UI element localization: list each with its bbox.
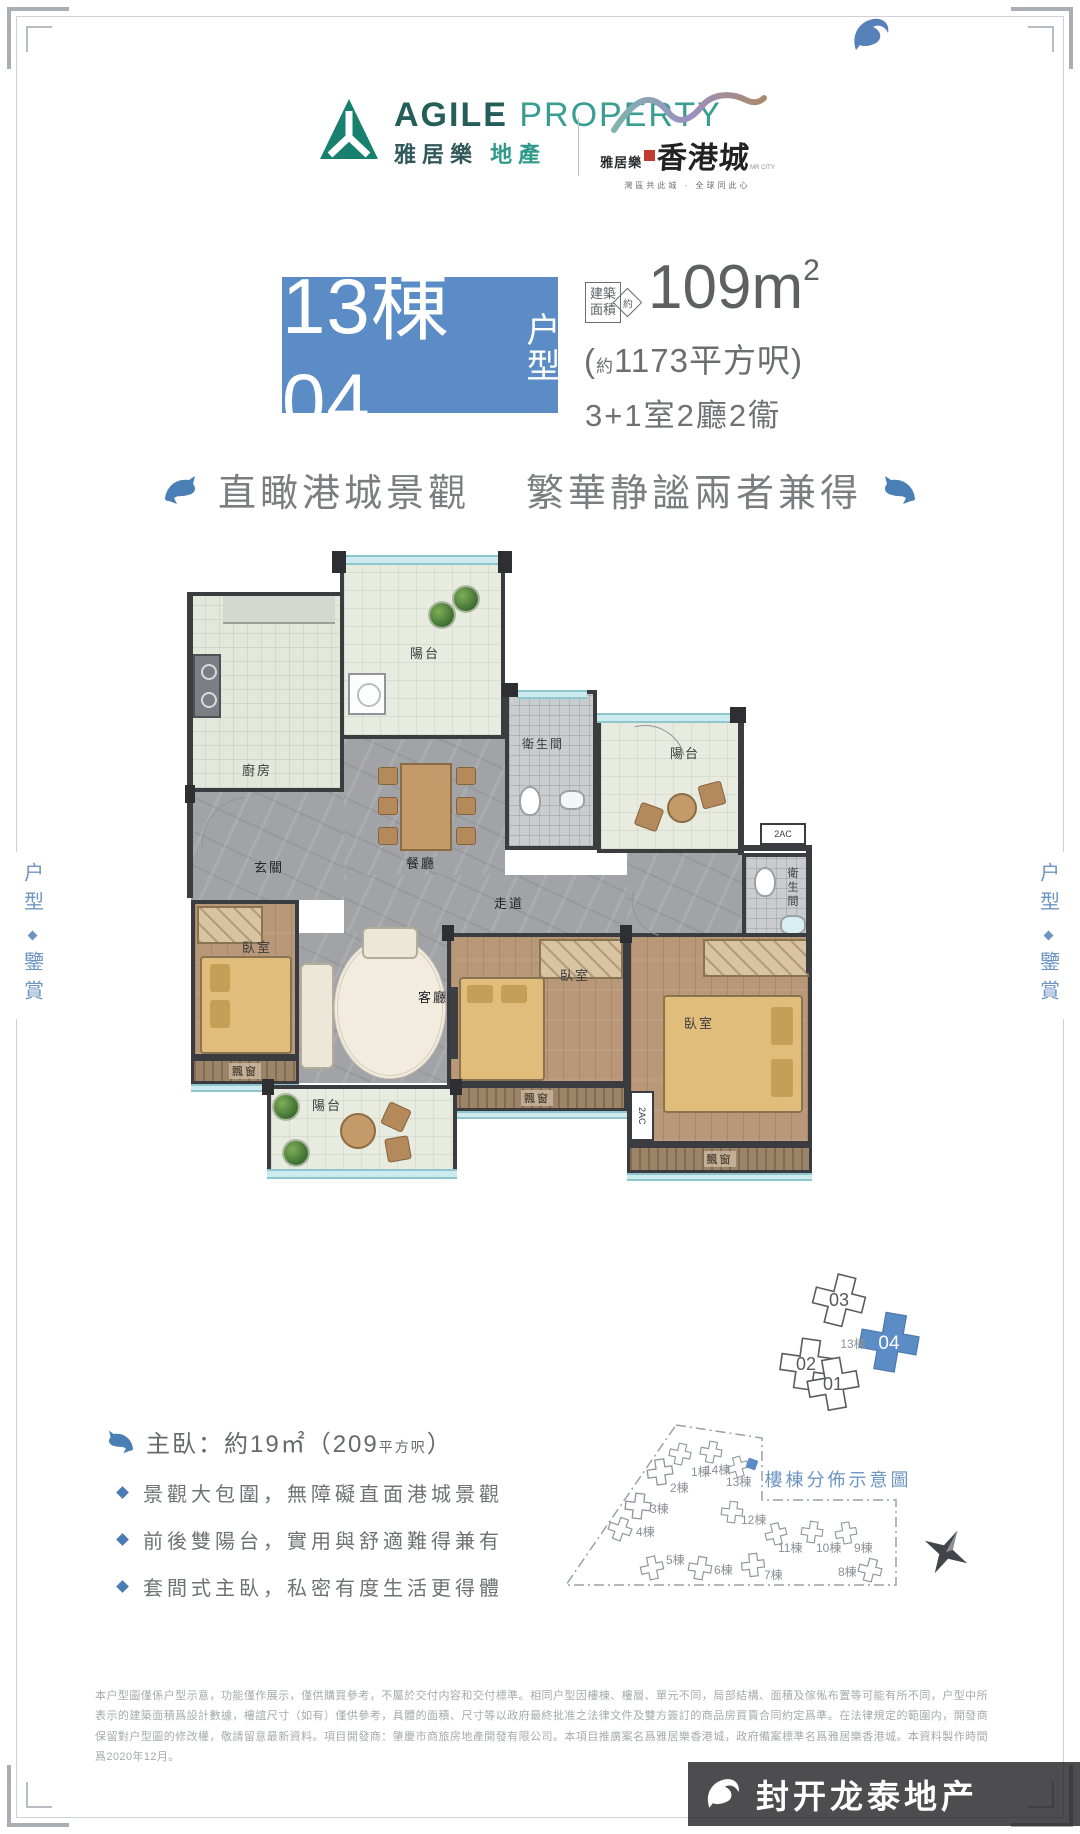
building-label: 8棟 <box>838 1564 857 1579</box>
balcony-table-icon <box>340 1113 376 1149</box>
window-strip <box>447 1111 627 1119</box>
watermark-bird-icon <box>848 12 894 63</box>
window-strip <box>627 1173 812 1181</box>
bedroom-left-label: 臥室 <box>242 937 272 956</box>
side-label-text: 户型 <box>1034 862 1063 920</box>
diamond-bullet-icon <box>116 1580 129 1593</box>
hkcity-prefix: 雅居樂 <box>600 152 642 171</box>
chair-icon <box>378 827 398 845</box>
building-1-shape <box>668 1442 693 1467</box>
slogan-row: 直瞰港城景觀 繁華静謐兩者兼得 <box>0 462 1080 517</box>
dolphin-icon <box>162 475 198 505</box>
building-14-shape <box>699 1440 723 1464</box>
agile-cn-type: 地產 <box>490 142 546 167</box>
chair-icon <box>456 797 476 815</box>
diamond-dot-icon <box>1043 931 1053 941</box>
kitchen-sink-counter <box>223 596 335 624</box>
bathroom-2-label: 衛生間 <box>784 867 800 909</box>
keyplan-building-label: 13棟 <box>840 1336 865 1351</box>
feature-list: 景觀大包圍，無障礙直面港城景觀 前後雙陽台，實用與舒適難得兼有 套間式主臥，私密… <box>118 1478 503 1619</box>
frame-corner-ornament-inner <box>1028 26 1054 52</box>
plant-icon <box>430 603 454 627</box>
area-hk-line: (約1173平方呎) <box>584 334 803 382</box>
kitchen-label: 廚房 <box>242 760 272 779</box>
wall-pier <box>730 707 746 723</box>
bay-window-label: 飄窗 <box>704 1151 736 1167</box>
wall <box>738 845 812 851</box>
unit-suffix: 户型 <box>521 312 558 384</box>
dining-label: 餐廳 <box>406 853 436 872</box>
diamond-bullet-icon <box>116 1533 129 1546</box>
balcony-bottom-label: 陽台 <box>312 1095 342 1114</box>
wall-pier <box>502 683 518 697</box>
floor-plan: 廚房 陽台 餐廳 玄關 走道 衛生間 陽台 2AC <box>172 535 822 1197</box>
red-seal-icon <box>644 150 655 161</box>
area-m2: 109m <box>648 253 803 322</box>
feature-item: 前後雙陽台，實用與舒適難得兼有 <box>118 1525 503 1554</box>
unit-04-label: 04 <box>878 1333 900 1354</box>
diamond-bullet-icon <box>116 1486 129 1499</box>
unit-01-label: 01 <box>823 1374 843 1394</box>
master-suite-text: 主臥：約19㎡ <box>146 1431 307 1458</box>
bed-icon <box>200 956 292 1054</box>
side-label-text: 户型 <box>18 862 47 920</box>
sink-icon <box>780 915 806 935</box>
master-suite-paren: （209 <box>307 1431 379 1458</box>
ac-platform-label: 2AC <box>760 823 806 845</box>
unit-02-label: 02 <box>796 1354 816 1374</box>
area-tag: 建築 面積 約 <box>585 282 638 323</box>
window-strip <box>597 713 742 723</box>
chair-icon <box>378 797 398 815</box>
feature-item: 景觀大包圍，無障礙直面港城景觀 <box>118 1478 503 1507</box>
ac-platform-label: 2AC <box>630 1091 654 1141</box>
unit-number: 13棟04 <box>282 244 511 447</box>
building-label: 5棟 <box>666 1552 685 1567</box>
agile-wordmark: AGILE <box>394 96 508 134</box>
living-label: 客廳 <box>418 987 448 1006</box>
building-label: 7棟 <box>764 1567 783 1582</box>
wall <box>187 592 193 898</box>
building-8-shape <box>856 1556 883 1583</box>
building-13-unit04-marker <box>746 1458 759 1471</box>
building-5-shape <box>639 1555 666 1582</box>
wall-pier <box>620 925 632 943</box>
dolphin-icon <box>882 475 918 505</box>
bay-window-label: 飄窗 <box>521 1090 553 1106</box>
sink-icon <box>559 790 585 810</box>
disclaimer-text: 本户型圖僅係户型示意，功能僅作展示，僅供購買參考，不屬於交付内容和交付標準。相同… <box>95 1686 988 1767</box>
building-label: 11棟 <box>778 1540 802 1555</box>
building-label: 6棟 <box>714 1562 733 1577</box>
header-divider <box>578 118 579 176</box>
washing-machine-icon <box>348 673 386 715</box>
hkcity-tagline: 灣區共此城 · 全球同此心 <box>600 180 775 191</box>
approx-small: 約 <box>596 357 614 376</box>
frame-corner-ornament-inner <box>26 1782 52 1808</box>
wall-pier <box>498 551 512 573</box>
wall <box>806 849 812 973</box>
compass-icon <box>914 1520 979 1585</box>
wardrobe-icon <box>703 939 809 977</box>
building-label: 14棟 <box>705 1462 730 1477</box>
window-strip <box>267 1169 457 1179</box>
building-4-shape <box>606 1515 635 1544</box>
building-3-shape <box>624 1492 651 1519</box>
poster-page: 户型 鑒賞 户型 鑒賞 AGILE PROPERTY 雅居樂 地產 <box>0 0 1080 1834</box>
bathroom-1-label: 衛生間 <box>522 735 564 752</box>
area-tag-line2: 面積 <box>590 302 616 318</box>
building-label: 10棟 <box>816 1540 841 1555</box>
unit-title-box: 13棟04 户型 <box>282 277 558 413</box>
hkcity-project-logo: 雅居樂 香港城 MR CITY 灣區共此城 · 全球同此心 <box>600 88 775 191</box>
side-label-text: 鑒賞 <box>18 951 47 1009</box>
bathroom-1 <box>505 690 597 850</box>
hk-area-value: 1173平方呎) <box>614 342 803 379</box>
watermark-bar: 封开龙泰地产 <box>688 1762 1080 1826</box>
bay-window-middle: 飄窗 <box>447 1085 627 1111</box>
bedroom-middle-label: 臥室 <box>560 965 590 984</box>
area-tag-line1: 建築 <box>590 286 616 302</box>
feature-text: 景觀大包圍，無障礙直面港城景觀 <box>143 1478 503 1507</box>
frame-corner-ornament <box>7 1765 69 1827</box>
frame-corner-ornament <box>1011 7 1073 69</box>
armchair-icon <box>362 927 418 959</box>
site-plan: 樓棟分佈示意圖 1棟 2棟 3棟 4棟 5棟 6棟 7棟 8棟 <box>548 1412 993 1657</box>
toilet-icon <box>754 867 776 897</box>
feature-text: 套間式主臥，私密有度生活更得體 <box>143 1572 503 1601</box>
building-label: 4棟 <box>636 1524 655 1539</box>
toilet-icon <box>519 786 541 816</box>
window-strip <box>340 555 505 565</box>
corridor-floor <box>344 875 642 933</box>
bay-window-left: 飄窗 <box>191 1058 299 1084</box>
sofa-icon <box>300 963 334 1069</box>
watermark-text: 封开龙泰地产 <box>756 1770 978 1818</box>
feature-item: 套間式主臥，私密有度生活更得體 <box>118 1572 503 1601</box>
room-layout-text: 3+1室2廳2衞 <box>585 390 781 435</box>
hkcity-name: 香港城 <box>656 133 752 177</box>
building-label: 9棟 <box>854 1540 873 1555</box>
side-label-text: 鑒賞 <box>1034 951 1063 1009</box>
side-label-left: 户型 鑒賞 <box>14 852 50 1019</box>
dining-table-icon <box>400 763 452 851</box>
watermark-bird-icon <box>702 1773 744 1815</box>
master-suite-line: 主臥：約19㎡（209平方呎） <box>106 1424 453 1459</box>
master-suite-unit: 平方呎 <box>379 1439 427 1455</box>
building-label: 3棟 <box>650 1501 669 1516</box>
plant-icon <box>454 587 478 611</box>
wall-pier <box>332 551 346 573</box>
agile-leaf-icon <box>318 97 380 169</box>
plant-icon <box>274 1095 298 1119</box>
building-7-shape <box>741 1553 766 1578</box>
window-strip <box>517 690 587 699</box>
building-label: 12棟 <box>741 1512 766 1527</box>
frame-corner-ornament-inner <box>26 26 52 52</box>
unit-03-label: 03 <box>829 1290 849 1310</box>
side-label-right: 户型 鑒賞 <box>1030 852 1066 1019</box>
stove-icon <box>193 654 221 718</box>
area-superscript: 2 <box>803 254 820 287</box>
bedroom-master-label: 臥室 <box>684 1013 714 1032</box>
building-label: 2棟 <box>670 1480 689 1495</box>
feature-text: 前後雙陽台，實用與舒適難得兼有 <box>143 1525 503 1554</box>
diamond-dot-icon <box>27 931 37 941</box>
corridor-label: 走道 <box>494 893 524 912</box>
mountain-ridge-icon <box>608 88 768 134</box>
balcony-top-label: 陽台 <box>410 643 440 662</box>
frame-corner-ornament <box>7 7 69 69</box>
paren-open: ( <box>584 342 596 379</box>
bay-window-label: 飄窗 <box>229 1063 261 1079</box>
approx-char: 約 <box>623 295 633 310</box>
hkcity-subtext: MR CITY <box>750 165 775 171</box>
bedroom-master <box>627 933 812 1145</box>
site-plan-title: 樓棟分佈示意圖 <box>765 1470 912 1490</box>
wall-pier <box>262 1079 274 1095</box>
wall-pier <box>185 785 195 803</box>
bedroom-middle <box>447 933 627 1085</box>
plant-icon <box>284 1141 308 1165</box>
tv-cabinet-icon <box>451 987 458 1059</box>
cushion-chair-icon <box>384 1135 412 1163</box>
master-suite-close: ） <box>427 1431 453 1458</box>
bedroom-left <box>191 900 299 1058</box>
area-value: 109m2 <box>648 252 820 323</box>
chair-icon <box>456 827 476 845</box>
slogan-part1: 直瞰港城景觀 <box>218 462 470 517</box>
agile-cn-name: 雅居樂 <box>394 142 478 167</box>
building-6-shape <box>687 1555 713 1581</box>
wall-pier <box>450 1079 462 1095</box>
chair-icon <box>378 767 398 785</box>
wall-pier <box>442 925 454 941</box>
dolphin-icon <box>106 1430 136 1454</box>
wall <box>738 715 744 855</box>
slogan-part2: 繁華静謐兩者兼得 <box>526 462 862 517</box>
bed-icon <box>459 977 545 1081</box>
chair-icon <box>456 767 476 785</box>
bay-window-master: 飄窗 <box>627 1145 812 1173</box>
